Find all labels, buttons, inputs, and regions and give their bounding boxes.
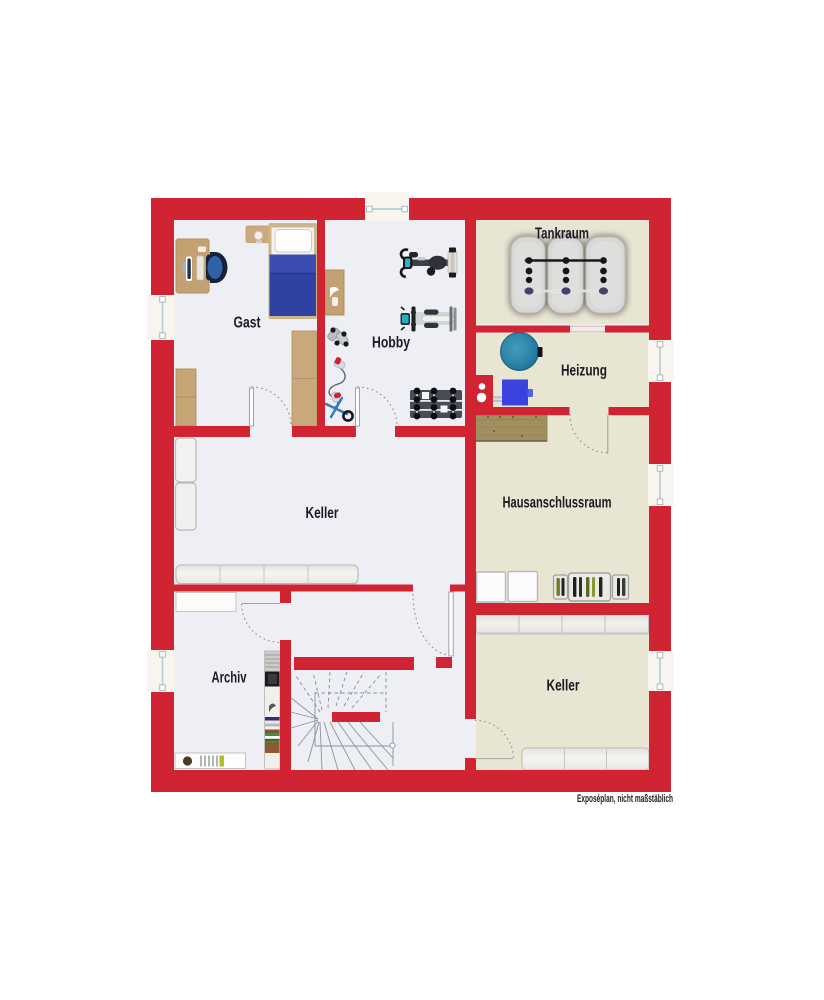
svg-text:Tankraum: Tankraum <box>535 226 589 243</box>
svg-text:Hausanschlussraum: Hausanschlussraum <box>503 495 612 512</box>
svg-text:Gast: Gast <box>234 315 262 332</box>
svg-text:Keller: Keller <box>547 678 580 695</box>
svg-text:Exposéplan, nicht maßstäblich: Exposéplan, nicht maßstäblich <box>577 793 673 805</box>
svg-text:Keller: Keller <box>306 505 339 522</box>
svg-text:Archiv: Archiv <box>212 670 247 687</box>
svg-text:Heizung: Heizung <box>561 363 607 380</box>
svg-text:Hobby: Hobby <box>372 335 410 352</box>
